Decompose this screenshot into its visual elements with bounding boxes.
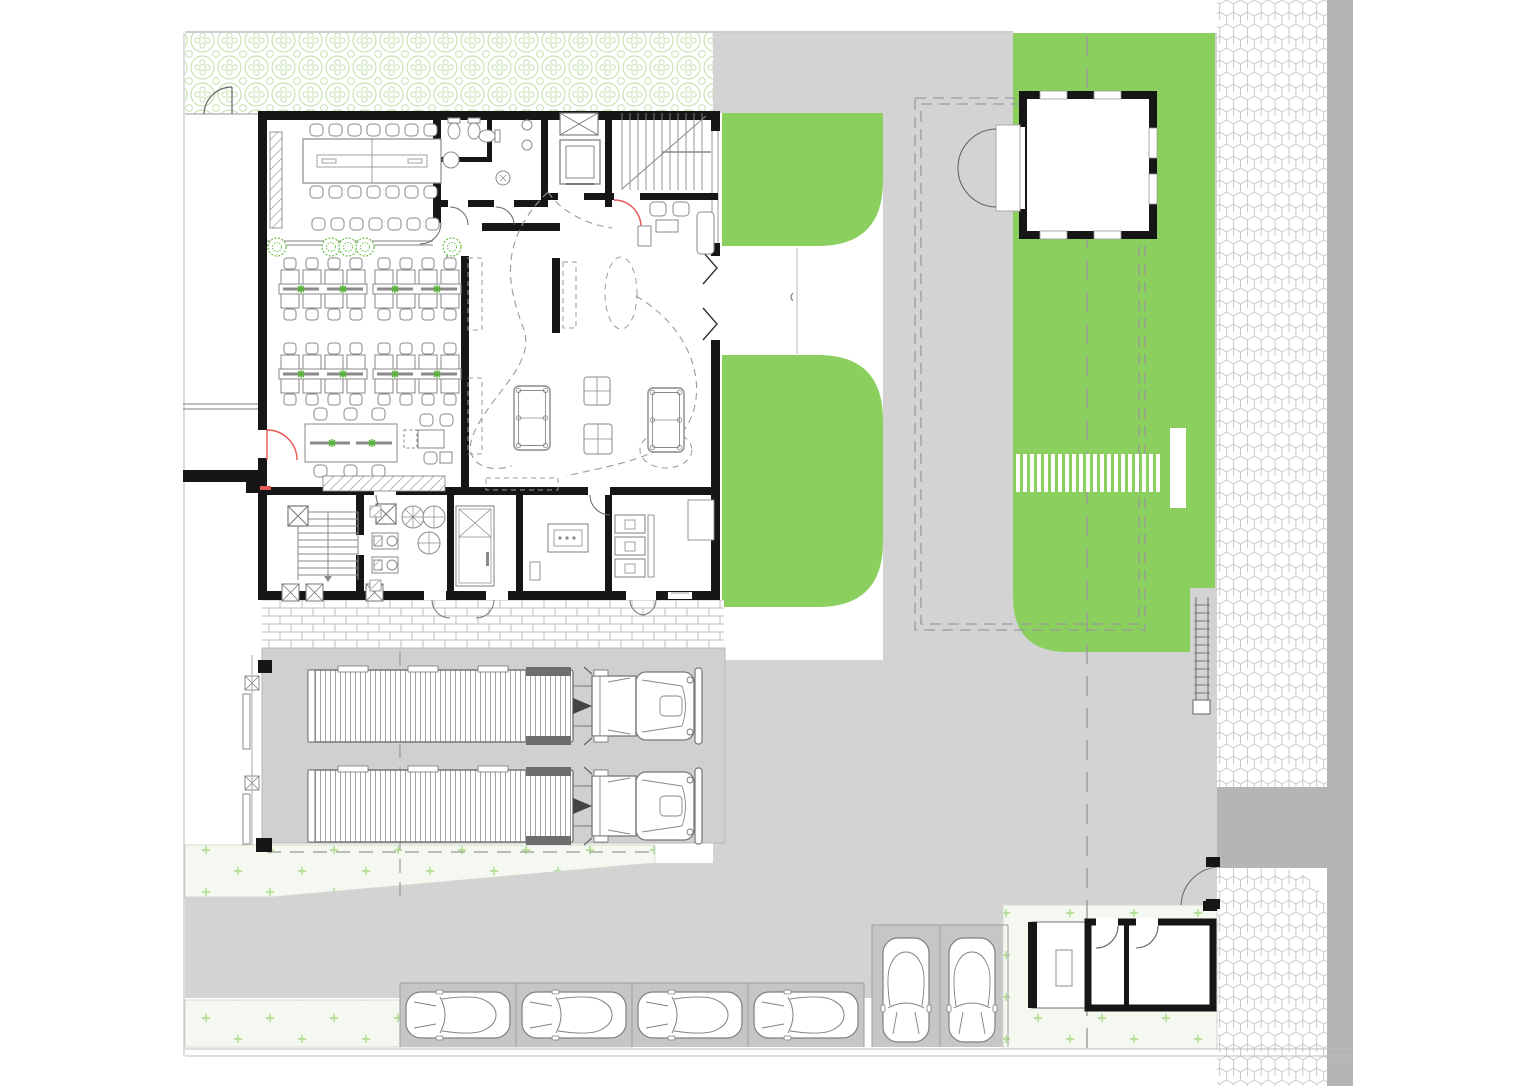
pool-table-2 <box>648 388 684 452</box>
lawn-white-bench <box>1170 428 1186 508</box>
crosswalk-stripes <box>1016 454 1160 492</box>
meeting-cluster <box>305 408 397 477</box>
main-building <box>258 111 724 648</box>
door-red-mark <box>260 486 271 490</box>
semi-truck-1 <box>308 666 702 745</box>
parked-car-5 <box>881 938 931 1042</box>
parked-car-1 <box>406 990 510 1040</box>
guard-counter <box>1056 950 1072 986</box>
hex-sidewalk-lower <box>1217 868 1327 1086</box>
driveway-entrance-patch <box>1217 787 1327 868</box>
gatehouse-door-recess <box>996 125 1020 211</box>
guard-rooms <box>1088 922 1213 1008</box>
site-plan-canvas <box>0 0 1536 1086</box>
green-patch-upper <box>722 113 883 246</box>
conference-cabinet <box>270 132 282 228</box>
parked-car-3 <box>638 990 742 1040</box>
parked-car-2 <box>522 990 626 1040</box>
elevator <box>560 113 600 184</box>
street-road <box>1327 0 1353 1086</box>
office-shelf <box>323 476 445 491</box>
workbench-room <box>456 506 494 586</box>
semi-truck-2 <box>308 766 702 845</box>
pool-table-1 <box>514 386 550 450</box>
parked-car-6 <box>947 938 997 1042</box>
hex-sidewalk-upper <box>1217 0 1327 787</box>
parked-car-4 <box>754 990 858 1040</box>
west-wall-stubs <box>183 404 262 493</box>
green-patch-lower <box>722 355 883 607</box>
